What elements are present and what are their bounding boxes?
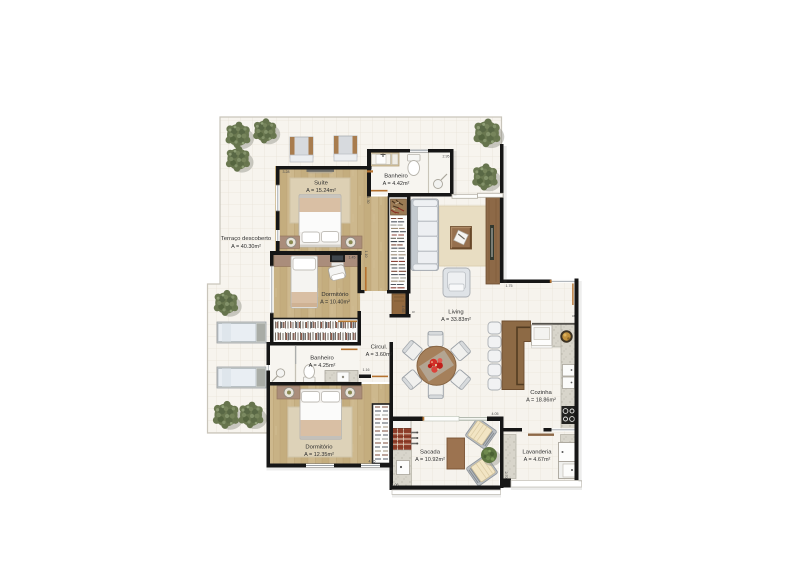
svg-text:2.95: 2.95	[443, 155, 450, 159]
svg-text:A = 4.67m²: A = 4.67m²	[524, 457, 551, 463]
svg-text:4.05: 4.05	[492, 412, 499, 416]
svg-text:2.70: 2.70	[504, 472, 508, 479]
svg-text:Terraço descoberto: Terraço descoberto	[221, 236, 272, 242]
svg-text:1.75: 1.75	[506, 284, 513, 288]
svg-text:5: 5	[411, 311, 415, 313]
svg-text:A = 4.25m²: A = 4.25m²	[309, 363, 336, 369]
svg-text:A = 12.35m²: A = 12.35m²	[304, 452, 334, 458]
svg-text:A = 33.83m²: A = 33.83m²	[441, 317, 471, 323]
svg-text:1.06: 1.06	[392, 483, 399, 487]
svg-text:Dormitório: Dormitório	[321, 292, 349, 298]
svg-text:1.30: 1.30	[366, 197, 370, 204]
svg-text:Sacada: Sacada	[420, 450, 441, 456]
svg-text:1.16: 1.16	[363, 368, 370, 372]
svg-text:Banheiro: Banheiro	[384, 174, 408, 180]
svg-text:1.10: 1.10	[364, 251, 368, 258]
svg-text:1.45: 1.45	[349, 256, 356, 260]
svg-text:A = 18.86m²: A = 18.86m²	[526, 398, 556, 404]
svg-text:Banheiro: Banheiro	[310, 356, 334, 362]
svg-text:3.28: 3.28	[283, 170, 290, 174]
svg-text:Dormitório: Dormitório	[305, 445, 333, 451]
svg-text:Circul.: Circul.	[371, 345, 388, 351]
svg-text:Lavanderia: Lavanderia	[522, 450, 552, 456]
svg-text:4.15: 4.15	[369, 460, 376, 464]
svg-text:A = 10.40m²: A = 10.40m²	[320, 300, 350, 306]
svg-text:A = 3.60m²: A = 3.60m²	[366, 352, 393, 358]
svg-text:Living: Living	[448, 310, 463, 316]
svg-text:A = 40.30m²: A = 40.30m²	[231, 244, 261, 250]
svg-text:4.65: 4.65	[401, 306, 405, 313]
svg-text:A = 4.42m²: A = 4.42m²	[383, 181, 410, 187]
svg-text:Suíte: Suíte	[314, 181, 328, 187]
svg-text:A = 10.92m²: A = 10.92m²	[415, 457, 445, 463]
svg-text:5: 5	[571, 315, 575, 317]
svg-text:A = 15.24m²: A = 15.24m²	[306, 188, 336, 194]
svg-text:Cozinha: Cozinha	[530, 390, 552, 396]
